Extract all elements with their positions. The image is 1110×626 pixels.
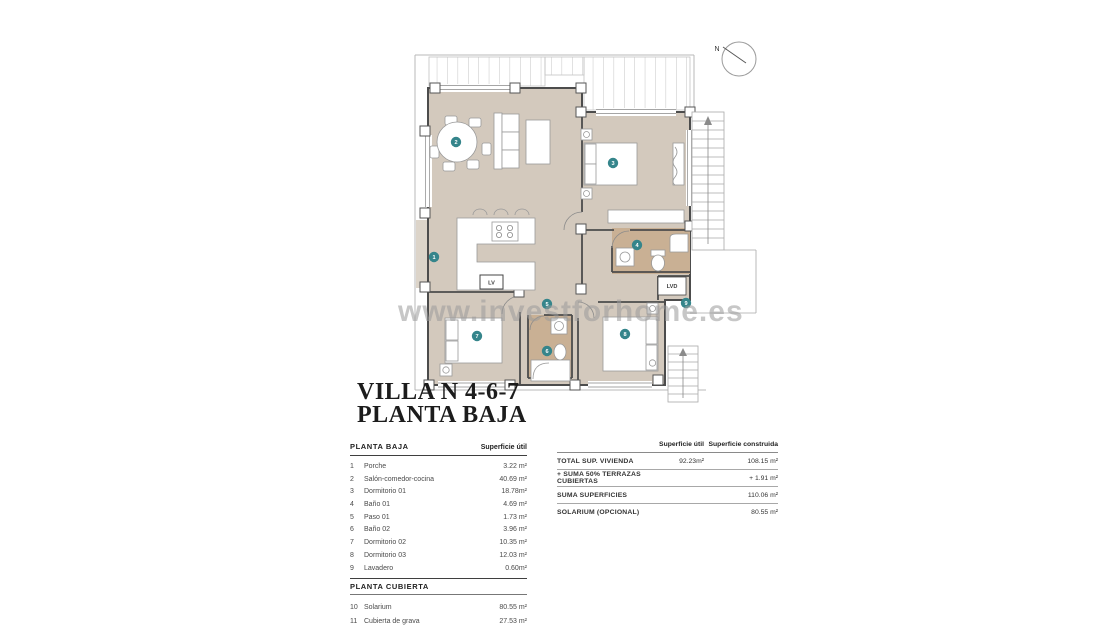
section1-header: PLANTA BAJA xyxy=(350,442,409,451)
table-row: 9Lavadero0.60m² xyxy=(350,563,527,576)
table-row: SOLARIUM (OPCIONAL) 80.55 m² xyxy=(557,504,778,520)
title-line1: VILLA N 4-6-7 xyxy=(357,381,527,404)
superficie-util-header: Superficie útil xyxy=(481,444,527,451)
section2-rows: 10Solarium80.55 m² 11Cubierta de grava27… xyxy=(350,595,527,626)
stairs-lower xyxy=(668,346,698,402)
svg-text:2: 2 xyxy=(454,140,457,146)
table-row: 3Dormitorio 0118.78m² xyxy=(350,486,527,499)
svg-text:3: 3 xyxy=(611,161,614,167)
page-title: VILLA N 4-6-7 PLANTA BAJA xyxy=(357,381,527,427)
lvd-label: LVD xyxy=(667,284,678,290)
compass-north-label: N xyxy=(714,46,719,53)
room-marker-4: 4 xyxy=(632,240,642,250)
svg-text:5: 5 xyxy=(545,302,548,308)
room-marker-3: 3 xyxy=(608,158,618,168)
col1-header: Superficie útil xyxy=(644,441,704,448)
compass: N xyxy=(714,42,756,76)
room-marker-6: 6 xyxy=(542,346,552,356)
table-row: 8Dormitorio 0312.03 m² xyxy=(350,550,527,563)
room-marker-5: 5 xyxy=(542,299,552,309)
table-row: 10Solarium80.55 m² xyxy=(350,601,527,615)
svg-text:7: 7 xyxy=(475,334,478,340)
table-row: 5Paso 011.73 m² xyxy=(350,512,527,525)
svg-text:6: 6 xyxy=(545,349,548,355)
table-row: 7Dormitorio 0210.35 m² xyxy=(350,537,527,550)
floor-plan: N LV LVD 1 2 3 4 5 6 7 8 9 xyxy=(0,0,1110,626)
table-row: 2Salón-comedor-cocina40.69 m² xyxy=(350,474,527,487)
stairs-upper xyxy=(690,112,756,313)
room-marker-9: 9 xyxy=(681,298,691,308)
room-marker-8: 8 xyxy=(620,329,630,339)
title-line2: PLANTA BAJA xyxy=(357,404,527,427)
section1-rows: 1Porche3.22 m² 2Salón-comedor-cocina40.6… xyxy=(350,456,527,575)
section2-header: PLANTA CUBIERTA xyxy=(350,578,527,595)
table-row: 1Porche3.22 m² xyxy=(350,461,527,474)
svg-text:1: 1 xyxy=(432,255,435,261)
table-row: TOTAL SUP. VIVIENDA 92.23m² 108.15 m² xyxy=(557,453,778,470)
room-areas-table: PLANTA BAJA Superficie útil 1Porche3.22 … xyxy=(350,442,527,626)
room-table-header: PLANTA BAJA Superficie útil xyxy=(350,442,527,456)
lv-label: LV xyxy=(488,281,495,287)
table-row: SUMA SUPERFICIES 110.06 m² xyxy=(557,487,778,504)
svg-text:9: 9 xyxy=(684,301,687,307)
table-row: + SUMA 50% TERRAZAS CUBIERTAS + 1.91 m² xyxy=(557,470,778,487)
room-marker-1: 1 xyxy=(429,252,439,262)
table-row: 6Baño 023.96 m² xyxy=(350,524,527,537)
surface-summary-table: Superficie útil Superficie construida TO… xyxy=(557,441,778,520)
room-marker-2: 2 xyxy=(451,137,461,147)
summary-header: Superficie útil Superficie construida xyxy=(557,441,778,453)
plan-sheet: N LV LVD 1 2 3 4 5 6 7 8 9 www.investfor… xyxy=(0,0,1110,626)
table-row: 11Cubierta de grava27.53 m² xyxy=(350,615,527,626)
room-marker-7: 7 xyxy=(472,331,482,341)
table-row: 4Baño 014.69 m² xyxy=(350,499,527,512)
col2-header: Superficie construida xyxy=(704,441,778,448)
porch-floor xyxy=(416,220,428,288)
svg-text:8: 8 xyxy=(623,332,626,338)
